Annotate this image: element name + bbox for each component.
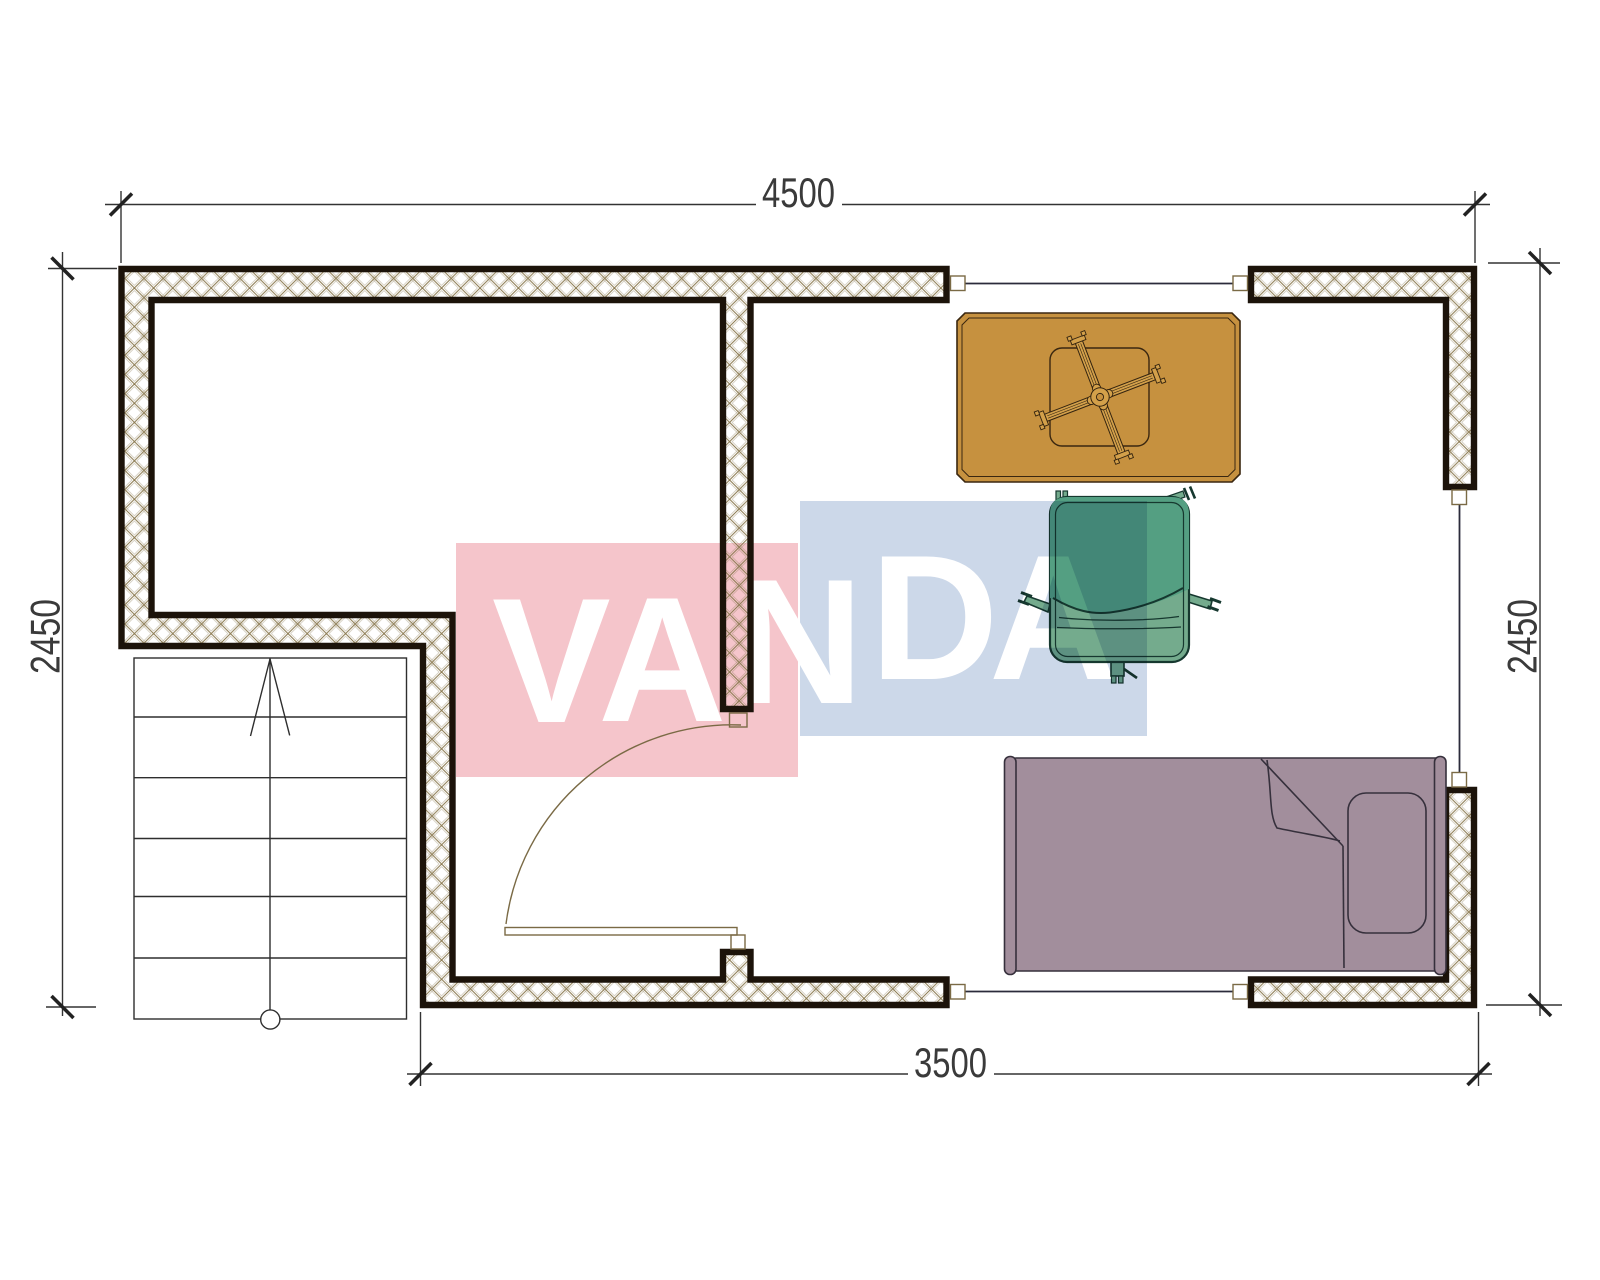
svg-text:2450: 2450 [22,599,69,674]
svg-text:D: D [870,518,999,717]
svg-text:3500: 3500 [914,1039,987,1086]
svg-text:V: V [492,561,611,760]
svg-text:N: N [735,542,864,741]
svg-text:2450: 2450 [1499,599,1546,674]
svg-text:A: A [598,560,727,759]
svg-text:4500: 4500 [762,169,835,216]
